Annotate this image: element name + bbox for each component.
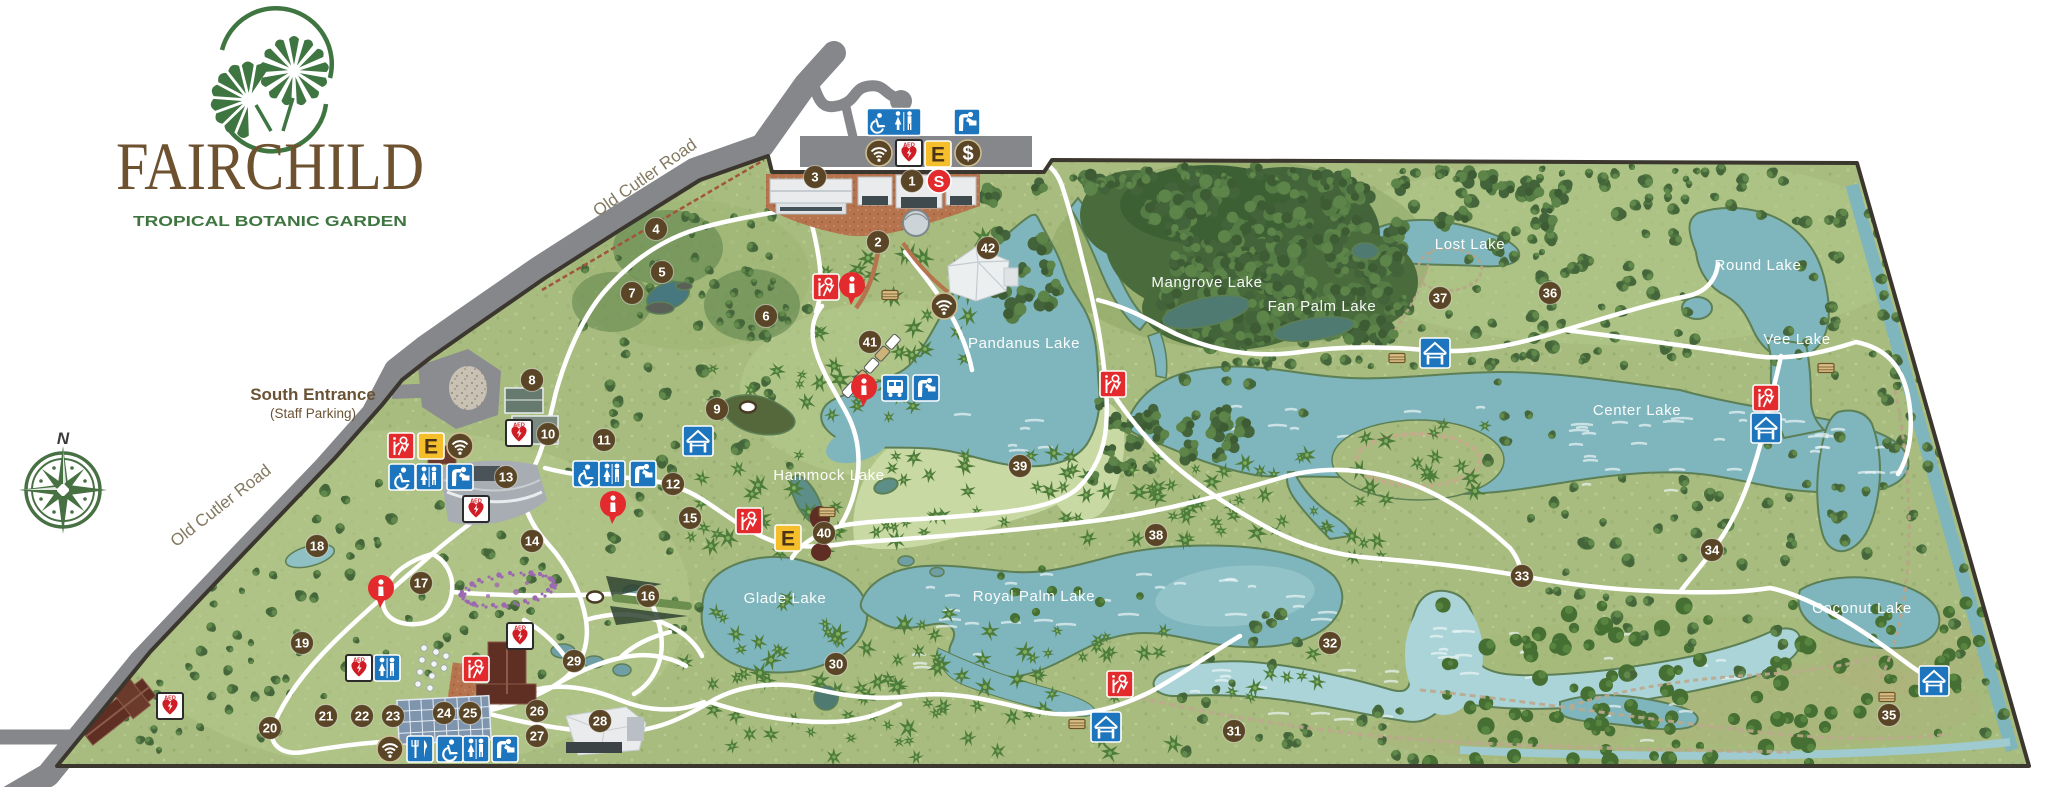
svg-text:8: 8 xyxy=(528,373,535,388)
svg-text:41: 41 xyxy=(863,335,877,350)
svg-text:34: 34 xyxy=(1705,543,1720,558)
svg-text:4: 4 xyxy=(652,222,660,237)
svg-text:24: 24 xyxy=(437,706,452,721)
svg-text:30: 30 xyxy=(829,657,843,672)
svg-text:14: 14 xyxy=(525,534,540,549)
svg-text:15: 15 xyxy=(683,511,697,526)
svg-text:28: 28 xyxy=(593,714,607,729)
svg-text:31: 31 xyxy=(1227,724,1241,739)
svg-text:2: 2 xyxy=(874,235,881,250)
svg-text:Mangrove Lake: Mangrove Lake xyxy=(1151,274,1262,291)
svg-text:Coconut Lake: Coconut Lake xyxy=(1812,600,1912,617)
svg-text:11: 11 xyxy=(597,433,611,448)
svg-text:Lost Lake: Lost Lake xyxy=(1435,236,1505,253)
svg-text:N: N xyxy=(57,429,70,448)
svg-text:29: 29 xyxy=(567,654,581,669)
svg-text:7: 7 xyxy=(628,286,635,301)
svg-text:12: 12 xyxy=(666,477,680,492)
svg-text:Fan Palm Lake: Fan Palm Lake xyxy=(1268,298,1377,315)
svg-text:1: 1 xyxy=(908,174,915,189)
svg-text:40: 40 xyxy=(817,526,831,541)
svg-text:10: 10 xyxy=(541,427,555,442)
svg-text:Royal Palm Lake: Royal Palm Lake xyxy=(973,588,1095,605)
svg-text:Hammock Lake: Hammock Lake xyxy=(773,467,884,484)
svg-text:FAIRCHILD: FAIRCHILD xyxy=(116,128,424,204)
svg-text:Pandanus Lake: Pandanus Lake xyxy=(968,335,1080,352)
svg-text:32: 32 xyxy=(1323,636,1337,651)
svg-text:19: 19 xyxy=(295,636,309,651)
svg-text:18: 18 xyxy=(310,539,324,554)
svg-text:35: 35 xyxy=(1882,708,1896,723)
svg-text:33: 33 xyxy=(1515,569,1529,584)
svg-text:27: 27 xyxy=(530,729,544,744)
svg-text:26: 26 xyxy=(530,704,544,719)
svg-text:42: 42 xyxy=(981,241,995,256)
svg-text:37: 37 xyxy=(1433,291,1447,306)
svg-text:9: 9 xyxy=(713,402,720,417)
svg-text:Glade Lake: Glade Lake xyxy=(744,590,827,607)
svg-text:21: 21 xyxy=(319,709,333,724)
svg-text:5: 5 xyxy=(658,265,665,280)
svg-text:16: 16 xyxy=(641,589,655,604)
svg-text:TROPICAL BOTANIC GARDEN: TROPICAL BOTANIC GARDEN xyxy=(133,213,407,230)
svg-text:6: 6 xyxy=(762,309,769,324)
svg-text:38: 38 xyxy=(1149,528,1163,543)
svg-text:25: 25 xyxy=(463,706,477,721)
svg-text:20: 20 xyxy=(263,721,277,736)
svg-text:Vee Lake: Vee Lake xyxy=(1763,331,1830,348)
svg-text:South Entrance: South Entrance xyxy=(250,385,376,404)
svg-text:Center Lake: Center Lake xyxy=(1593,402,1681,419)
svg-text:39: 39 xyxy=(1013,459,1027,474)
svg-text:Round Lake: Round Lake xyxy=(1715,257,1802,274)
svg-text:17: 17 xyxy=(414,576,428,591)
svg-text:22: 22 xyxy=(355,709,369,724)
svg-text:36: 36 xyxy=(1543,286,1557,301)
svg-text:(Staff Parking): (Staff Parking) xyxy=(270,406,356,421)
svg-text:13: 13 xyxy=(499,470,513,485)
svg-text:23: 23 xyxy=(386,709,400,724)
svg-text:3: 3 xyxy=(811,170,818,185)
